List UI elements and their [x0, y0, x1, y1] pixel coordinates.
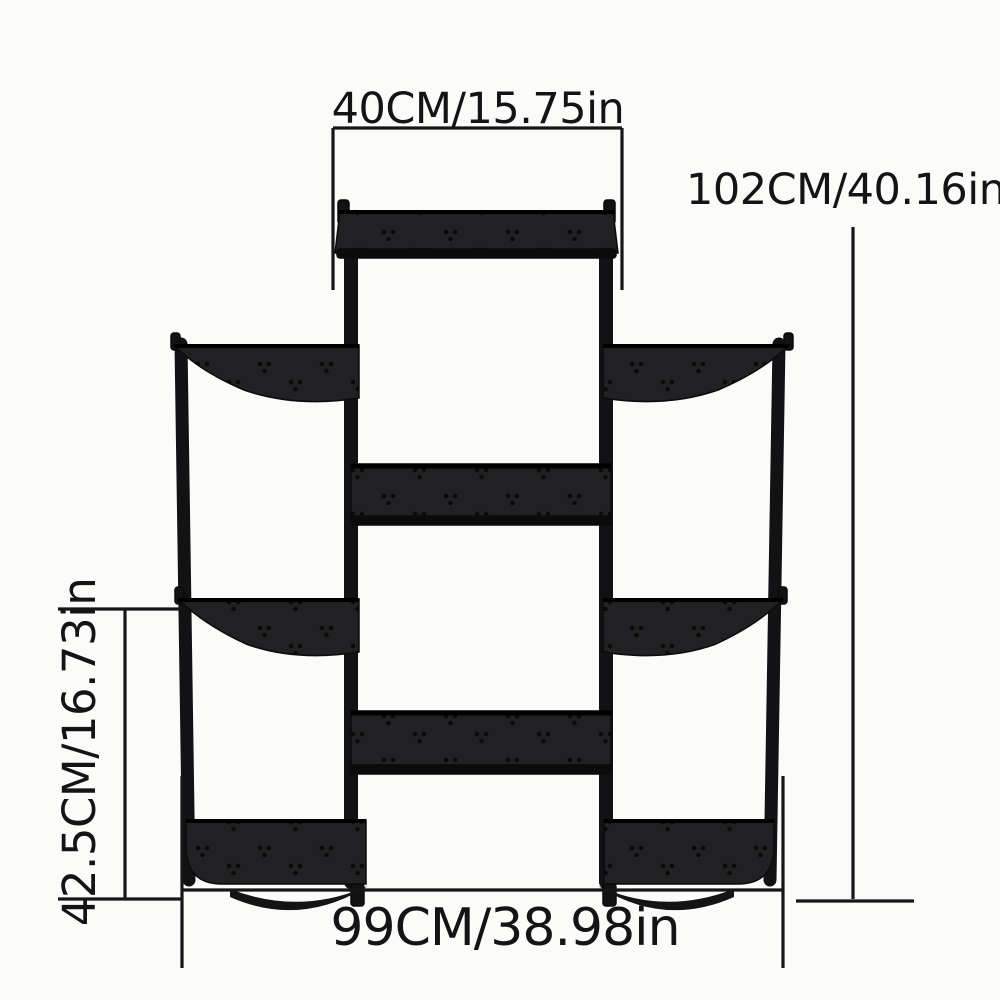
tier2-left-shelf — [171, 333, 359, 402]
tier3-center-shelf — [351, 464, 611, 525]
tier2-right-shelf — [603, 333, 793, 402]
dim-top-width — [333, 128, 622, 290]
dim-total-height — [796, 227, 914, 901]
bottom-left-shelf — [186, 820, 368, 910]
plant-stand-illustration — [0, 0, 1000, 1000]
top-width-dimension-label: 40CM/15.75in — [330, 86, 626, 133]
plant-stand-posts — [181, 222, 779, 882]
bottom-right-shelf — [598, 820, 774, 910]
size-chart-diagram: 40CM/15.75in 102CM/40.16in 42.5CM/16.73i… — [0, 0, 1000, 1000]
tier5-center-shelf — [351, 711, 611, 774]
height-dimension-label: 102CM/40.16in — [686, 167, 1000, 214]
tier4-right-shelf — [603, 587, 787, 656]
tier4-left-shelf — [175, 587, 359, 656]
outer-right-post — [770, 344, 779, 880]
bottom-width-dimension-label: 99CM/38.98in — [200, 900, 810, 957]
top-shelf — [335, 200, 618, 258]
plant-stand-shelves — [171, 200, 793, 910]
tier-height-dimension-label: 42.5CM/16.73in — [55, 552, 105, 952]
